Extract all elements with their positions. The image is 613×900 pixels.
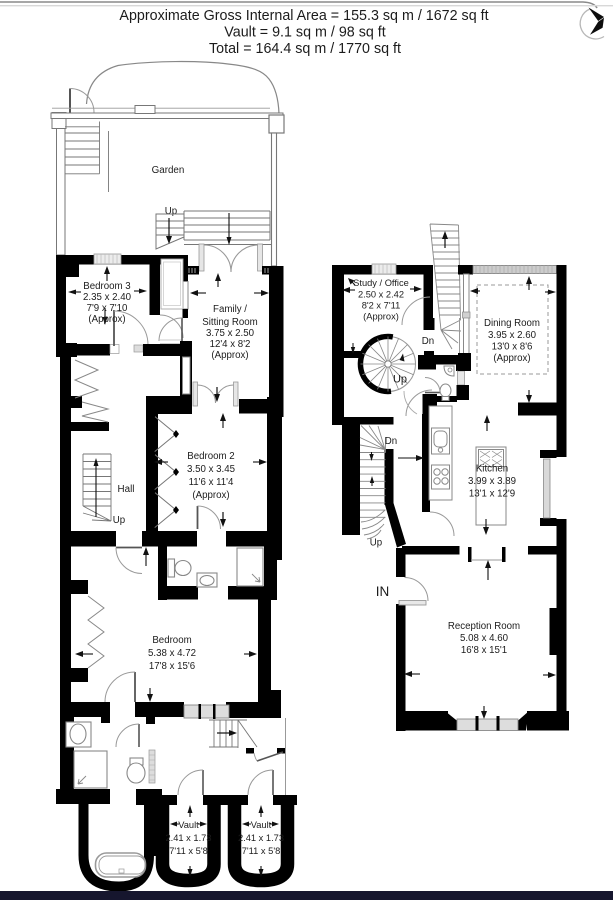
svg-text:7'9 x 7'10: 7'9 x 7'10 [87,303,128,314]
svg-text:(Approx): (Approx) [88,314,125,325]
svg-text:Dn: Dn [422,336,434,347]
svg-text:3.99 x 3.89: 3.99 x 3.89 [468,476,516,487]
svg-text:Vault: Vault [178,820,199,830]
svg-text:7'11 x 5'8: 7'11 x 5'8 [169,846,208,856]
svg-text:2.50 x 2.42: 2.50 x 2.42 [358,290,404,300]
svg-text:13'1 x 12'9: 13'1 x 12'9 [469,489,515,500]
svg-text:Dn: Dn [385,436,397,447]
svg-text:Sitting Room: Sitting Room [202,317,257,328]
svg-text:5.38 x 4.72: 5.38 x 4.72 [148,648,196,659]
svg-text:Hall: Hall [118,484,135,495]
svg-text:12'4 x 8'2: 12'4 x 8'2 [210,339,251,350]
svg-text:11'6 x 11'4: 11'6 x 11'4 [189,477,234,488]
svg-text:16'8 x 15'1: 16'8 x 15'1 [461,645,507,656]
svg-text:Family /: Family / [213,304,247,315]
svg-text:(Approx): (Approx) [363,312,399,322]
svg-text:8'2 x 7'11: 8'2 x 7'11 [362,301,401,311]
svg-text:Kitchen: Kitchen [476,464,508,475]
svg-text:7'11 x 5'8: 7'11 x 5'8 [242,846,281,856]
svg-text:(Approx): (Approx) [192,490,229,501]
svg-text:(Approx): (Approx) [211,350,248,361]
svg-text:(Approx): (Approx) [493,353,530,364]
svg-text:2.35 x 2.40: 2.35 x 2.40 [83,292,132,303]
svg-text:Vault: Vault [251,820,272,830]
svg-text:5.08 x 4.60: 5.08 x 4.60 [460,633,509,644]
svg-text:13'0 x 8'6: 13'0 x 8'6 [492,342,533,353]
svg-text:3.95 x 2.60: 3.95 x 2.60 [488,330,537,341]
svg-text:17'8 x 15'6: 17'8 x 15'6 [149,661,195,672]
svg-text:3.75 x 2.50: 3.75 x 2.50 [206,328,255,339]
svg-text:Bedroom: Bedroom [152,635,191,646]
svg-text:Up: Up [165,206,177,217]
svg-text:2.41 x 1.73: 2.41 x 1.73 [165,833,211,843]
svg-text:IN: IN [376,584,390,599]
svg-text:Bedroom 2: Bedroom 2 [187,451,234,462]
svg-text:Total = 164.4 sq m / 1770 sq f: Total = 164.4 sq m / 1770 sq ft [209,41,401,57]
svg-text:Bedroom 3: Bedroom 3 [83,281,130,292]
svg-text:Up: Up [370,538,382,549]
svg-text:3.50 x 3.45: 3.50 x 3.45 [187,464,235,475]
svg-text:Garden: Garden [152,165,185,176]
svg-text:2.41 x 1.73: 2.41 x 1.73 [238,833,284,843]
svg-text:Vault = 9.1 sq m / 98 sq ft: Vault = 9.1 sq m / 98 sq ft [224,25,385,41]
svg-text:Dining Room: Dining Room [484,318,540,329]
svg-text:Up: Up [393,374,407,386]
svg-text:Up: Up [113,515,125,526]
svg-text:Reception Room: Reception Room [448,621,520,632]
svg-text:Study / Office: Study / Office [353,278,409,288]
svg-text:Approximate Gross Internal Are: Approximate Gross Internal Area = 155.3 … [119,8,488,24]
